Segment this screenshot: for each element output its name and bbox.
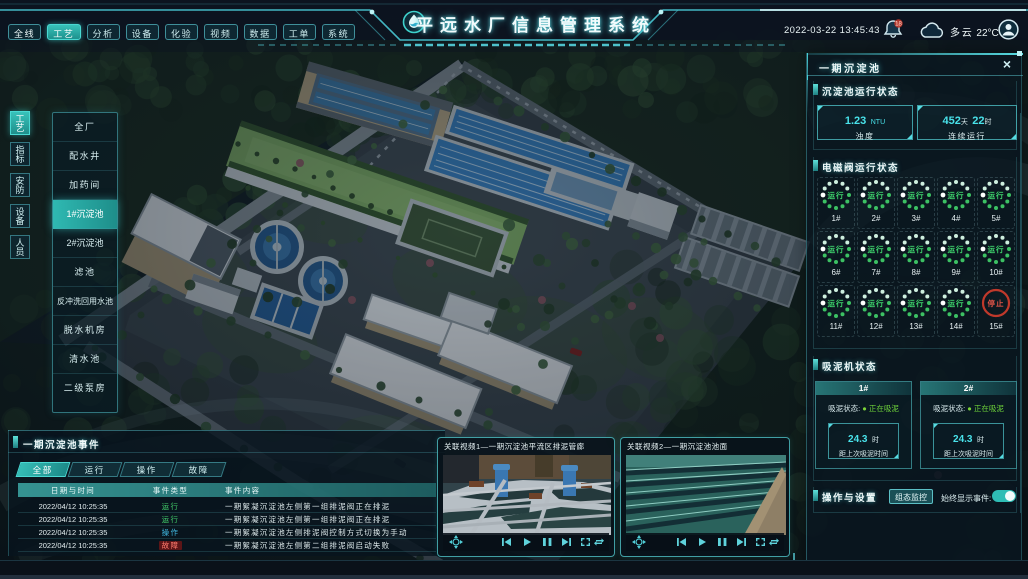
svg-text:运行: 运行 <box>908 190 925 200</box>
svg-text:运行: 运行 <box>828 298 845 308</box>
svg-text:运行: 运行 <box>988 244 1005 254</box>
svg-text:运行: 运行 <box>868 244 885 254</box>
svg-text:停止: 停止 <box>988 298 1005 308</box>
svg-text:运行: 运行 <box>828 190 845 200</box>
svg-text:运行: 运行 <box>868 298 885 308</box>
svg-text:运行: 运行 <box>828 244 845 254</box>
svg-text:运行: 运行 <box>948 190 965 200</box>
svg-text:运行: 运行 <box>948 244 965 254</box>
svg-text:运行: 运行 <box>948 298 965 308</box>
svg-text:18: 18 <box>895 22 902 28</box>
svg-text:运行: 运行 <box>908 298 925 308</box>
svg-text:运行: 运行 <box>908 244 925 254</box>
svg-text:运行: 运行 <box>988 190 1005 200</box>
svg-text:运行: 运行 <box>868 190 885 200</box>
